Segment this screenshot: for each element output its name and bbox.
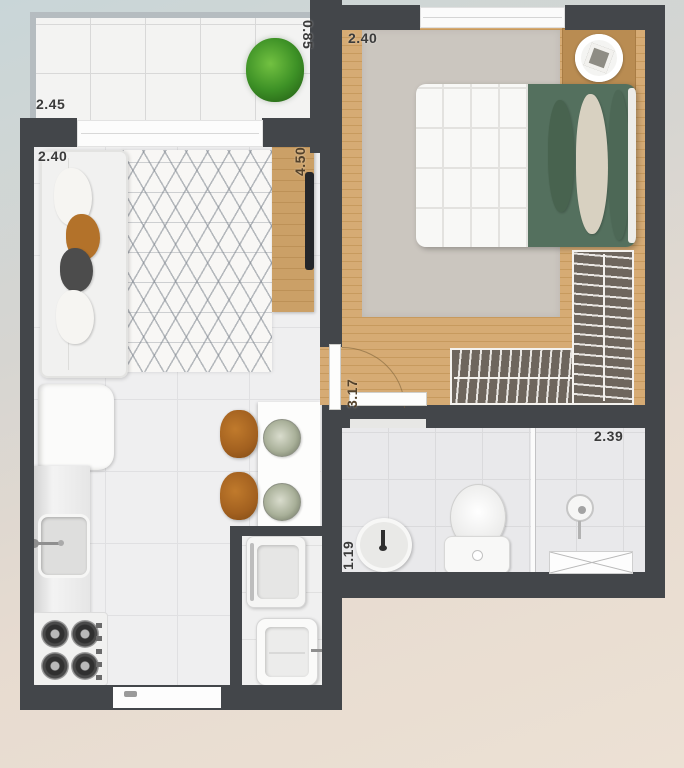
dim-bedroom-length: 3.17 [344, 379, 360, 408]
bedroom-door-leaf [330, 345, 340, 409]
bathroom-door-opening [350, 419, 426, 428]
kitchen-sink [38, 514, 90, 578]
bedroom-window [420, 7, 565, 28]
bathroom-door-leaf [350, 393, 426, 405]
stool-2 [220, 472, 258, 520]
wall-living-bedroom [320, 147, 342, 347]
shower-head [566, 494, 594, 522]
entrance-door-mark [124, 691, 137, 697]
laundry-tank-basin [265, 627, 309, 677]
dim-balcony-depth: 0.85 [300, 20, 316, 49]
bed-pillow-green-1 [548, 100, 574, 212]
wall-kitchen-bathroom [322, 428, 342, 690]
washing-machine [246, 536, 306, 608]
dim-suite-width: 2.39 [594, 428, 623, 444]
stove-burner [41, 620, 69, 648]
stool-1 [220, 410, 258, 458]
plate-setting-2 [263, 483, 301, 521]
nightstand-decor-inner [584, 43, 615, 74]
bed-quilt [416, 84, 528, 247]
bed-pillow-beige [576, 94, 608, 234]
wardrobe-hangers-horizontal [450, 348, 576, 405]
dim-living-length: 4.50 [292, 147, 308, 176]
wall-slide-door-right [262, 118, 310, 147]
laundry-tank [256, 618, 318, 686]
floor-plan: 2.45 0.85 2.40 4.50 2.40 3.17 1.19 2.39 [0, 0, 684, 768]
dim-bedroom-width: 2.40 [348, 30, 377, 46]
dim-bathroom-width: 1.19 [340, 541, 356, 570]
dim-living-width: 2.40 [38, 148, 67, 164]
dim-balcony-width: 2.45 [36, 96, 65, 112]
basin-faucet-base [379, 545, 387, 551]
bed-pillow-green-2 [608, 90, 630, 240]
basin-faucet [381, 530, 385, 546]
wall-laundry-left [230, 526, 242, 686]
shower-glass-partition [531, 428, 535, 573]
stove-burner [71, 652, 99, 680]
stove-burner [71, 620, 99, 648]
wardrobe-hangers-vertical [572, 250, 634, 405]
kitchen-sink-drain [58, 540, 64, 546]
refrigerator [38, 384, 114, 470]
washing-machine-slot [250, 543, 254, 601]
wall-left-outer [20, 118, 34, 710]
washing-machine-lid [257, 545, 299, 599]
double-bed [416, 84, 636, 247]
kitchen-faucet-arm [37, 542, 59, 545]
plate-setting-1 [263, 419, 301, 457]
tv [305, 172, 314, 270]
bed-sheet-edge [628, 88, 636, 243]
wall-slide-door-left [20, 118, 77, 147]
wall-bathroom-bottom [332, 572, 663, 598]
balcony-sliding-door [77, 120, 263, 147]
wall-bedroom-top-left [342, 5, 420, 30]
geometric-rug [122, 150, 272, 372]
stove-burner [41, 652, 69, 680]
potted-plant [246, 38, 304, 102]
sofa-pillow-dark [60, 248, 93, 292]
sofa-pillow-white-2 [56, 290, 94, 344]
wall-right-outer [645, 5, 665, 598]
nightstand-decor [575, 34, 623, 82]
shower-stem [578, 521, 581, 539]
wall-laundry-top [242, 526, 322, 536]
stove-knobs [96, 620, 102, 680]
toilet-flush-button [472, 550, 483, 561]
bathroom-vent-window [550, 552, 632, 573]
shower-head-center [578, 506, 586, 514]
